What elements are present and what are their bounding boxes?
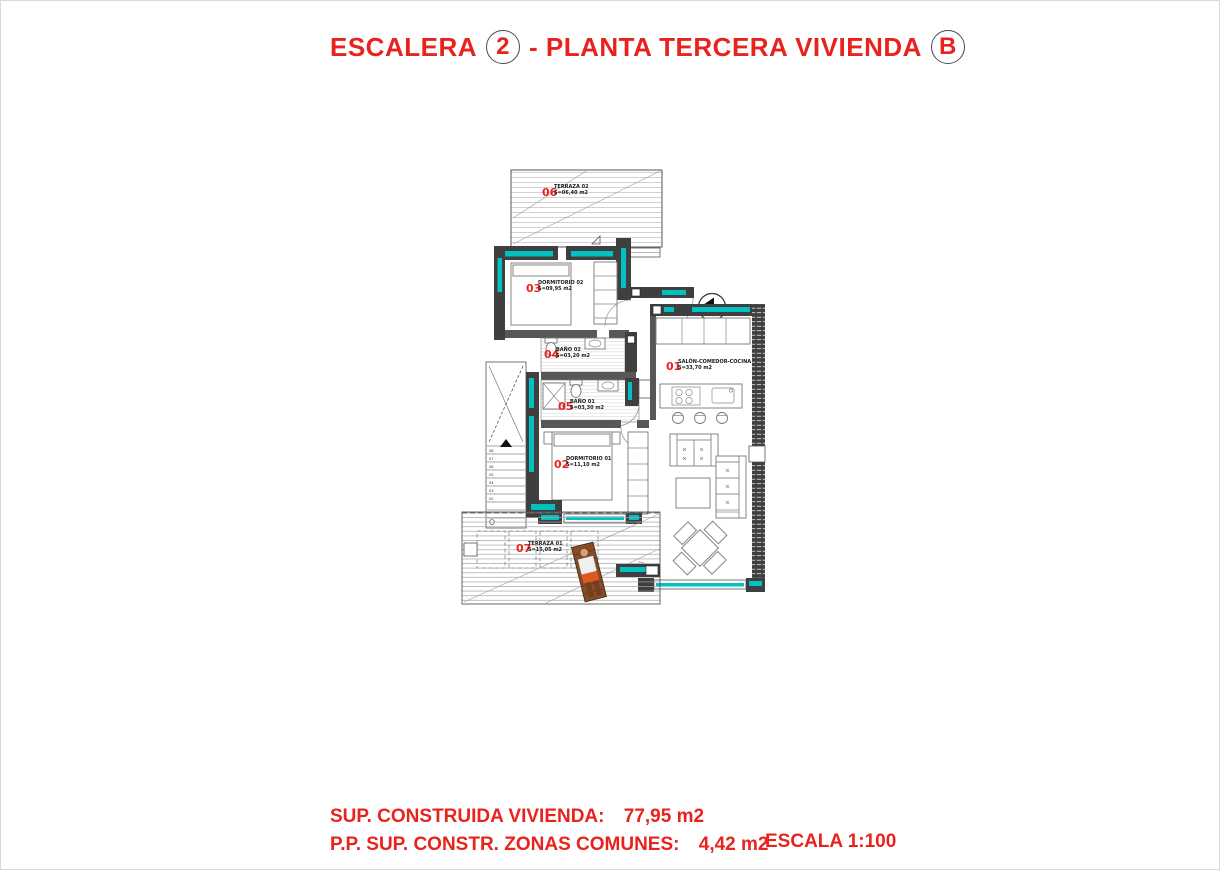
window-glass [692,307,750,312]
svg-text:08: 08 [489,449,494,453]
scale-label: ESCALA 1:100 [765,831,896,853]
built-surface-row: SUP. CONSTRUIDA VIVIENDA: 77,95 m2 [330,806,768,828]
window-glass [499,251,553,257]
svg-text:03: 03 [489,489,494,493]
wardrobe [628,432,648,514]
svg-text:S=03,30 m2: S=03,30 m2 [570,405,605,411]
toilet [571,385,581,398]
floor-plan: 06 TERRAZA 02 S=06,40 m2 [0,0,1220,870]
dormitorio-02: 03 DORMITORIO 02 S=09,95 m2 [505,262,631,338]
svg-text:SALÓN-COMEDOR-COCINA: SALÓN-COMEDOR-COCINA [678,358,751,365]
window-glass [571,251,613,257]
common-zones-label: P.P. SUP. CONSTR. ZONAS COMUNES: [330,834,679,855]
terraza-02: 06 TERRAZA 02 S=06,40 m2 [511,170,662,247]
plan-sheet: ESCALERA 2 - PLANTA TERCERA VIVIENDA B [0,0,1220,870]
side-window [749,446,765,462]
window-glass [620,567,646,572]
window-glass [498,258,503,292]
bano-02: 04 BAÑO 02 S=03,20 m2 [541,332,637,380]
built-surface-label: SUP. CONSTRUIDA VIVIENDA: [330,806,604,827]
svg-text:S=33,70 m2: S=33,70 m2 [678,365,713,371]
common-zones-value: 4,42 m2 [699,834,769,855]
svg-text:07: 07 [489,457,494,461]
svg-text:BAÑO 01: BAÑO 01 [570,398,595,405]
window-glass [662,290,686,295]
window-glass [621,248,626,288]
built-surface-value: 77,95 m2 [624,806,704,827]
stool [695,413,706,424]
kitchen-counter [656,318,750,344]
surface-summary: SUP. CONSTRUIDA VIVIENDA: 77,95 m2 P.P. … [330,806,768,862]
dormitorio-01: 02 DORMITORIO 01 S=11,10 m2 [526,432,648,524]
svg-text:06: 06 [489,465,494,469]
nightstand [544,432,552,444]
svg-text:S=03,20 m2: S=03,20 m2 [556,353,591,359]
window-glass [529,378,534,408]
svg-text:S=15,05 m2: S=15,05 m2 [528,547,563,553]
svg-text:S=06,40 m2: S=06,40 m2 [554,190,589,196]
svg-text:S=09,95 m2: S=09,95 m2 [538,286,573,292]
terraza-01-label: 07 TERRAZA 01 S=15,05 m2 [516,541,563,555]
window-glass [664,307,674,312]
svg-text:S=11,10 m2: S=11,10 m2 [566,462,601,468]
window-glass [749,581,762,586]
sofa-three-seat [716,456,746,518]
bed-pillow [513,265,569,276]
window-glass [656,583,744,587]
salon-label: 01 SALÓN-COMEDOR-COCINA S=33,70 m2 [666,358,751,373]
window-glass [529,416,534,472]
bed-pillow [554,434,610,446]
window-glass [531,504,555,510]
common-zones-row: P.P. SUP. CONSTR. ZONAS COMUNES: 4,42 m2 [330,834,768,856]
svg-text:02: 02 [489,497,494,501]
stool [673,413,684,424]
dining-set [661,509,739,587]
window-glass [628,382,632,400]
wardrobe [594,262,617,324]
coffee-table [676,478,710,508]
nightstand [612,432,620,444]
svg-text:04: 04 [489,481,494,485]
svg-text:BAÑO 02: BAÑO 02 [556,346,581,353]
svg-text:05: 05 [489,473,494,477]
stool [717,413,728,424]
terraza-01: 07 TERRAZA 01 S=15,05 m2 [462,512,660,604]
sofa-two-seat [670,434,718,466]
